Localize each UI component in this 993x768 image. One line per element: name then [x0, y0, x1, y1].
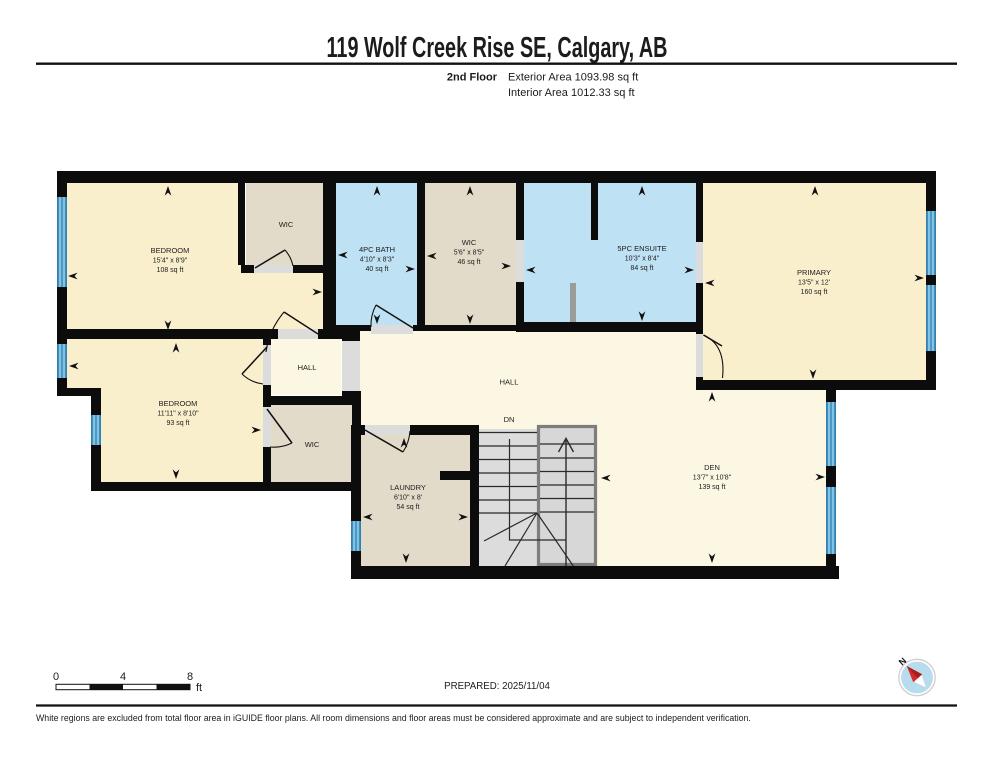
svg-text:Interior Area 1012.33 sq ft: Interior Area 1012.33 sq ft: [508, 87, 635, 99]
svg-text:119 Wolf Creek Rise SE, Calgar: 119 Wolf Creek Rise SE, Calgary, AB: [327, 32, 668, 64]
svg-text:5'6" x 8'5": 5'6" x 8'5": [454, 250, 485, 257]
svg-text:93 sq ft: 93 sq ft: [167, 420, 190, 427]
svg-text:108 sq ft: 108 sq ft: [157, 267, 184, 274]
svg-text:ft: ft: [196, 682, 202, 694]
svg-text:4'10" x 8'3": 4'10" x 8'3": [360, 257, 395, 264]
svg-text:WIC: WIC: [279, 220, 294, 229]
svg-text:13'5" x 12': 13'5" x 12': [798, 280, 830, 287]
svg-text:DEN: DEN: [704, 463, 720, 472]
svg-text:40 sq ft: 40 sq ft: [366, 266, 389, 273]
svg-text:10'3" x 8'4": 10'3" x 8'4": [625, 256, 660, 263]
svg-text:White regions are excluded fro: White regions are excluded from total fl…: [36, 713, 751, 723]
svg-text:BEDROOM: BEDROOM: [159, 399, 198, 408]
svg-text:HALL: HALL: [298, 363, 317, 372]
svg-text:4PC BATH: 4PC BATH: [359, 245, 395, 254]
svg-text:160 sq ft: 160 sq ft: [801, 289, 828, 296]
svg-text:0: 0: [53, 671, 59, 683]
svg-text:54 sq ft: 54 sq ft: [397, 504, 420, 511]
svg-text:4: 4: [120, 671, 126, 683]
svg-text:WIC: WIC: [462, 238, 477, 247]
svg-text:11'11" x 8'10": 11'11" x 8'10": [157, 411, 199, 418]
svg-text:HALL: HALL: [500, 378, 519, 387]
svg-text:2nd Floor: 2nd Floor: [447, 72, 498, 84]
svg-text:WIC: WIC: [305, 440, 320, 449]
svg-text:Exterior Area 1093.98 sq ft: Exterior Area 1093.98 sq ft: [508, 72, 638, 84]
svg-text:139 sq ft: 139 sq ft: [699, 484, 726, 491]
svg-text:BEDROOM: BEDROOM: [151, 246, 190, 255]
svg-text:8: 8: [187, 671, 193, 683]
svg-text:6'10" x 8': 6'10" x 8': [394, 495, 422, 502]
svg-text:PRIMARY: PRIMARY: [797, 268, 831, 277]
svg-text:LAUNDRY: LAUNDRY: [390, 483, 426, 492]
svg-text:13'7" x 10'8": 13'7" x 10'8": [693, 475, 732, 482]
svg-text:46 sq ft: 46 sq ft: [458, 259, 481, 266]
svg-text:PREPARED: 2025/11/04: PREPARED: 2025/11/04: [444, 681, 550, 692]
svg-text:DN: DN: [504, 415, 515, 424]
svg-text:15'4" x 8'9": 15'4" x 8'9": [153, 258, 188, 265]
svg-text:5PC ENSUITE: 5PC ENSUITE: [617, 244, 666, 253]
svg-text:84 sq ft: 84 sq ft: [631, 265, 654, 272]
